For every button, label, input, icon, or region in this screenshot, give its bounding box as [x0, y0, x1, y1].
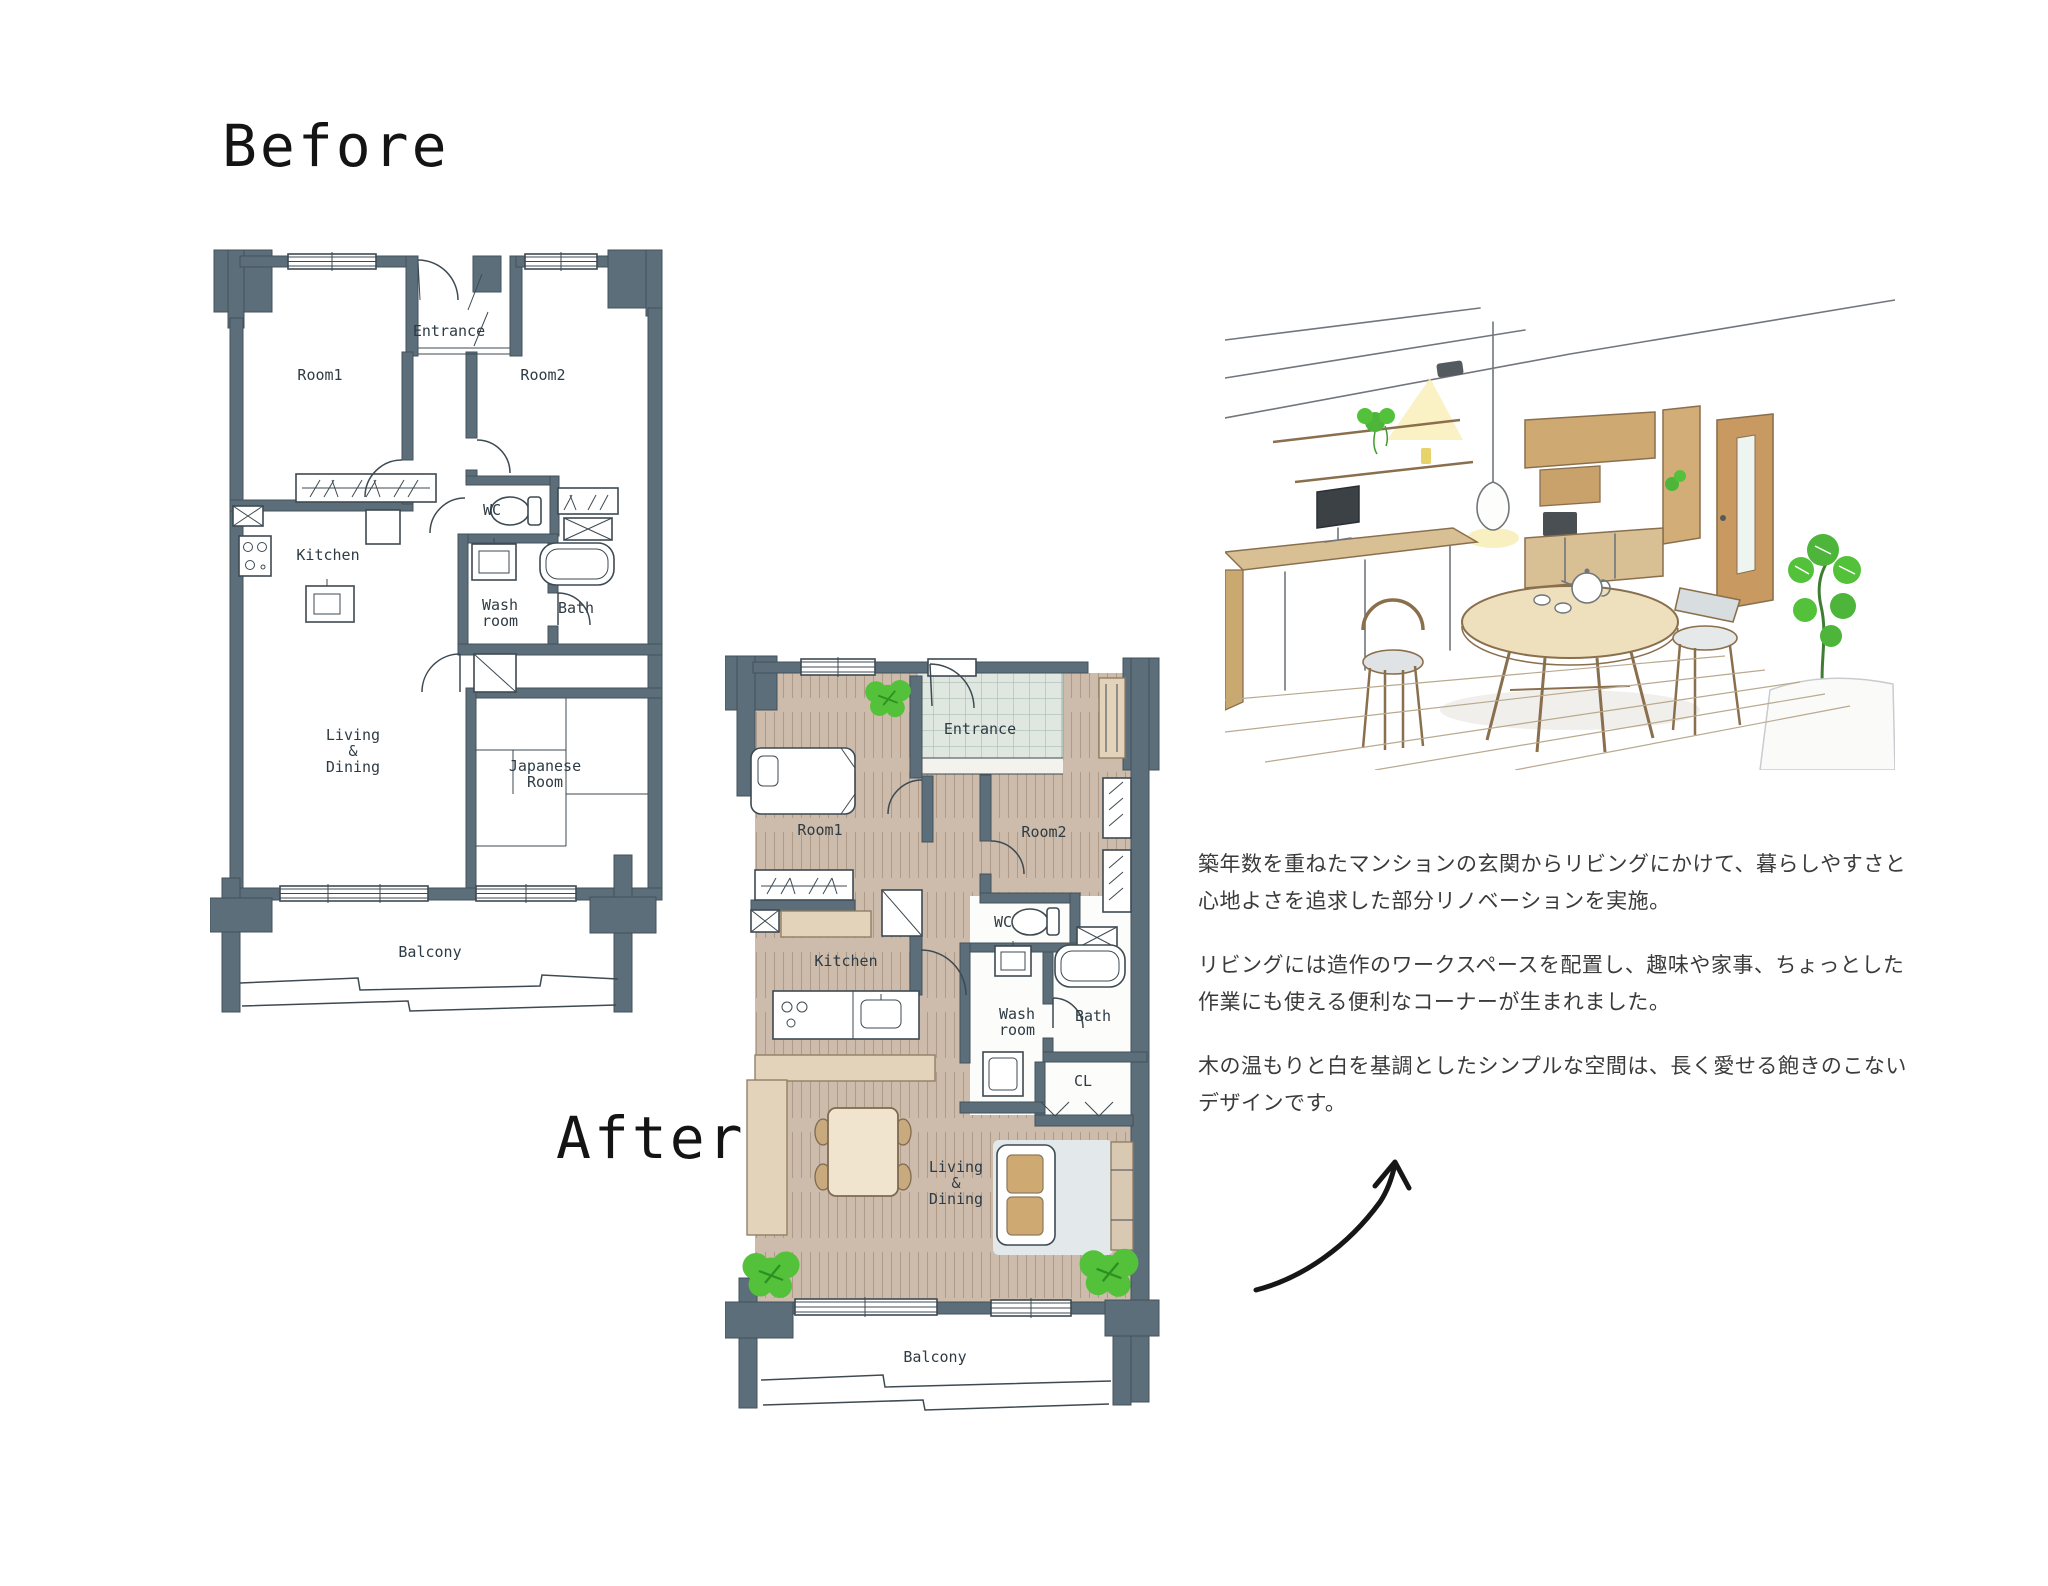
before-japanese-room-label: Japanese Room: [509, 758, 581, 790]
bed-icon: [751, 748, 855, 814]
before-storage-icon: [474, 654, 516, 692]
before-title: Before: [222, 112, 450, 180]
before-wc-label: WC: [483, 502, 501, 518]
before-washroom-label: Wash room: [482, 597, 518, 629]
tv-board-icon: [1111, 1142, 1133, 1250]
sofa-corner: [1760, 678, 1895, 770]
before-floor-plan: Room1 Entrance Room2 Kitchen WC Wash roo…: [210, 248, 665, 1058]
door-icon: [1717, 414, 1773, 610]
teapot-icon: [1572, 573, 1602, 603]
entrance-tile: [917, 666, 1063, 760]
after-room1-label: Room1: [797, 822, 842, 838]
renovation-presentation-page: Before After: [0, 0, 2048, 1586]
after-floor-plan: Room1 Entrance Room2 Kitchen WC Wash roo…: [725, 650, 1165, 1450]
after-living-label: Living & Dining: [929, 1159, 983, 1207]
after-cl-label: CL: [1074, 1073, 1092, 1089]
arrow-icon: [1248, 1150, 1418, 1300]
before-living-label: Living & Dining: [326, 727, 380, 775]
description-text: 築年数を重ねたマンションの玄関からリビングにかけて、暮らしやすさと心地よさを追求…: [1198, 846, 1922, 1149]
stove-icon: [239, 536, 271, 576]
after-kitchen-label: Kitchen: [814, 953, 877, 969]
before-room1-label: Room1: [297, 367, 342, 383]
dining-table-icon: [815, 1108, 911, 1196]
microwave-icon: [1543, 512, 1577, 536]
door-knob-icon: [1720, 515, 1726, 521]
kitchen-cabinets: [1525, 406, 1700, 588]
interior-perspective-sketch: [1225, 270, 1895, 770]
after-bath-label: Bath: [1075, 1008, 1111, 1024]
description-paragraph-1: 築年数を重ねたマンションの玄関からリビングにかけて、暮らしやすさと心地よさを追求…: [1198, 846, 1922, 920]
after-wc-label: WC: [994, 914, 1012, 930]
entrance-step: [917, 758, 1063, 774]
sink-icon: [306, 586, 354, 622]
after-washroom-label: Wash room: [999, 1006, 1035, 1038]
before-balcony-label: Balcony: [398, 944, 461, 960]
description-paragraph-3: 木の温もりと白を基調としたシンプルな空間は、長く愛せる飽きのこないデザインです。: [1198, 1048, 1922, 1122]
vase-icon: [1421, 448, 1431, 464]
monitor-icon: [1317, 486, 1359, 528]
after-balcony-label: Balcony: [903, 1349, 966, 1365]
work-counter: [755, 1055, 935, 1081]
toilet-icon: [1012, 909, 1048, 935]
monstera-plant-icon: [1788, 534, 1861, 702]
ceiling-lines: [1225, 300, 1895, 418]
before-room2-label: Room2: [520, 367, 565, 383]
washbasin-icon: [995, 946, 1031, 976]
before-entrance-label: Entrance: [413, 323, 485, 339]
after-room2-label: Room2: [1021, 824, 1066, 840]
before-balcony-outline: [240, 975, 618, 1011]
description-paragraph-2: リビングには造作のワークスペースを配置し、趣味や家事、ちょっとした作業にも使える…: [1198, 947, 1922, 1021]
cup-icon: [1534, 595, 1550, 605]
chair-left: [1363, 600, 1423, 750]
after-balcony-outline: [761, 1375, 1111, 1410]
before-bath-label: Bath: [558, 600, 594, 616]
pendant-light-icon: [1467, 322, 1519, 548]
cup-icon: [1555, 603, 1571, 613]
round-table: [1440, 569, 1700, 753]
after-title: After: [556, 1104, 746, 1172]
before-walls: [210, 250, 662, 1012]
after-floor-plan-drawing: [725, 650, 1165, 1450]
before-floor-plan-drawing: [210, 248, 665, 1058]
before-kitchen-label: Kitchen: [296, 547, 359, 563]
before-kitchen-fixtures: [233, 506, 400, 622]
work-desk: [1225, 486, 1477, 710]
sofa-icon: [993, 1140, 1133, 1255]
after-entrance-label: Entrance: [944, 721, 1016, 737]
